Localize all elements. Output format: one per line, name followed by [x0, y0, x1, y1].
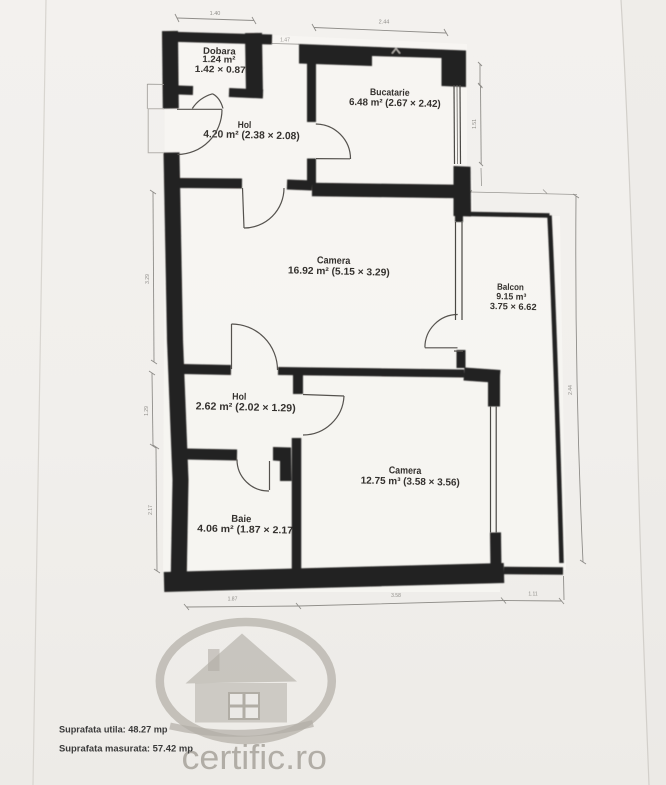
svg-text:1.40: 1.40 [210, 11, 221, 17]
svg-text:9.15 m³: 9.15 m³ [496, 291, 526, 302]
svg-text:1.51: 1.51 [472, 119, 478, 129]
svg-text:2.17: 2.17 [148, 505, 154, 515]
svg-text:2.62 m² (2.02 × 1.29): 2.62 m² (2.02 × 1.29) [196, 400, 296, 414]
svg-text:1.42 × 0.87: 1.42 × 0.87 [195, 64, 246, 75]
svg-text:1.11: 1.11 [528, 592, 538, 598]
svg-text:16.92 m² (5.15 × 3.29): 16.92 m² (5.15 × 3.29) [288, 265, 390, 278]
svg-text:3.29: 3.29 [145, 274, 151, 284]
svg-text:2.44: 2.44 [568, 385, 574, 395]
svg-text:Suprafata masurata: 57.42 mp: Suprafata masurata: 57.42 mp [59, 744, 193, 755]
svg-text:certific.ro: certific.ro [182, 739, 327, 777]
svg-text:12.75 m³ (3.58 × 3.56): 12.75 m³ (3.58 × 3.56) [361, 475, 460, 488]
svg-text:Suprafata utila: 48.27 mp: Suprafata utila: 48.27 mp [59, 725, 168, 736]
svg-text:2.44: 2.44 [379, 20, 390, 26]
svg-text:3.75 × 6.62: 3.75 × 6.62 [490, 301, 537, 312]
svg-text:1.29: 1.29 [144, 406, 150, 416]
svg-text:4.06 m² (1.87 × 2.17: 4.06 m² (1.87 × 2.17 [197, 523, 294, 536]
svg-text:1.47: 1.47 [280, 38, 290, 44]
svg-text:3.58: 3.58 [391, 593, 401, 599]
svg-text:6.48 m² (2.67 × 2.42): 6.48 m² (2.67 × 2.42) [349, 97, 441, 110]
svg-text:1.87: 1.87 [228, 597, 238, 603]
